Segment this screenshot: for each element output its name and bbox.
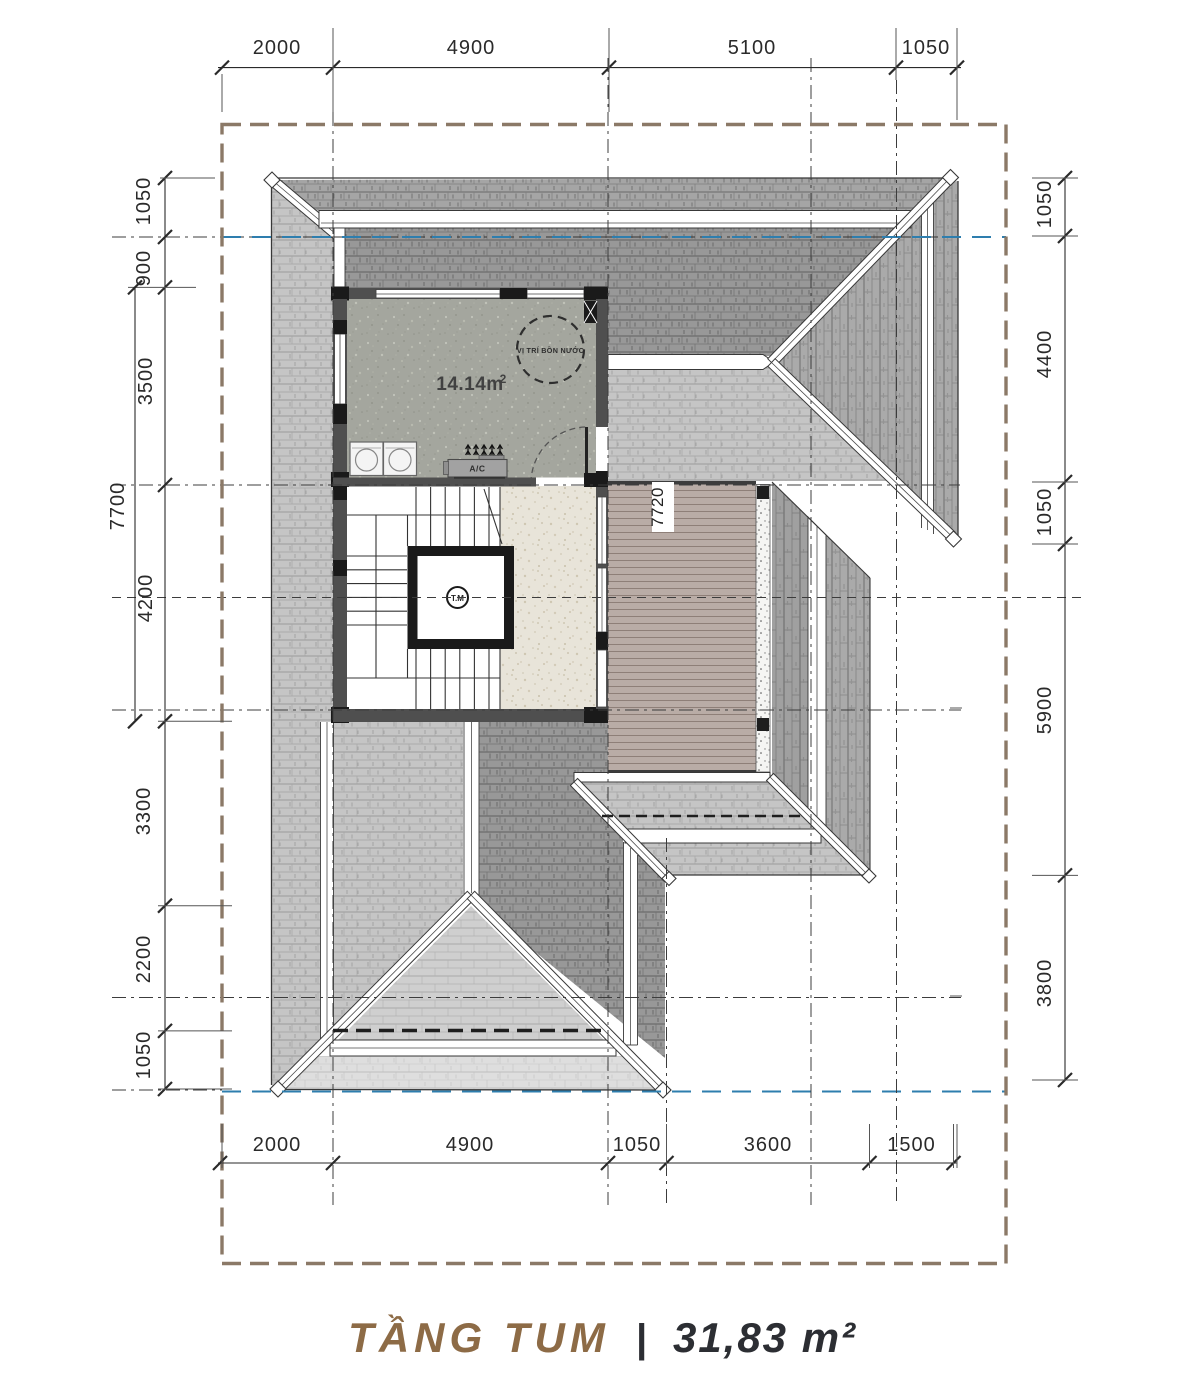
svg-text:3800: 3800 xyxy=(1034,959,1056,1008)
svg-text:4900: 4900 xyxy=(447,37,496,59)
svg-text:|: | xyxy=(635,1317,646,1361)
svg-text:7700: 7700 xyxy=(107,482,129,531)
svg-text:4400: 4400 xyxy=(1034,330,1056,379)
svg-text:1050: 1050 xyxy=(902,37,951,59)
svg-text:7720: 7720 xyxy=(648,487,667,527)
svg-text:1050: 1050 xyxy=(1034,488,1056,537)
svg-text:4900: 4900 xyxy=(446,1134,495,1156)
svg-text:900: 900 xyxy=(133,250,155,286)
svg-text:3300: 3300 xyxy=(133,787,155,836)
svg-text:1050: 1050 xyxy=(613,1134,662,1156)
svg-text:2200: 2200 xyxy=(133,935,155,984)
svg-text:14.14m: 14.14m xyxy=(436,374,503,395)
svg-text:31,83 m²: 31,83 m² xyxy=(673,1314,857,1361)
svg-text:VỊ TRÍ BỒN NƯỚC: VỊ TRÍ BỒN NƯỚC xyxy=(517,345,584,355)
svg-text:2000: 2000 xyxy=(253,37,302,59)
svg-text:1050: 1050 xyxy=(133,1031,155,1080)
svg-text:3600: 3600 xyxy=(744,1134,793,1156)
svg-text:T.M: T.M xyxy=(451,594,464,603)
svg-text:2: 2 xyxy=(500,372,507,386)
svg-text:5100: 5100 xyxy=(728,37,777,59)
svg-text:1050: 1050 xyxy=(133,177,155,226)
svg-text:3500: 3500 xyxy=(135,357,157,406)
svg-text:4200: 4200 xyxy=(135,574,157,623)
svg-text:A/C: A/C xyxy=(469,464,485,474)
svg-text:1500: 1500 xyxy=(887,1134,936,1156)
svg-text:2000: 2000 xyxy=(253,1134,302,1156)
svg-text:1050: 1050 xyxy=(1034,180,1056,229)
svg-text:TẦNG TUM: TẦNG TUM xyxy=(348,1314,610,1361)
svg-text:5900: 5900 xyxy=(1034,686,1056,735)
